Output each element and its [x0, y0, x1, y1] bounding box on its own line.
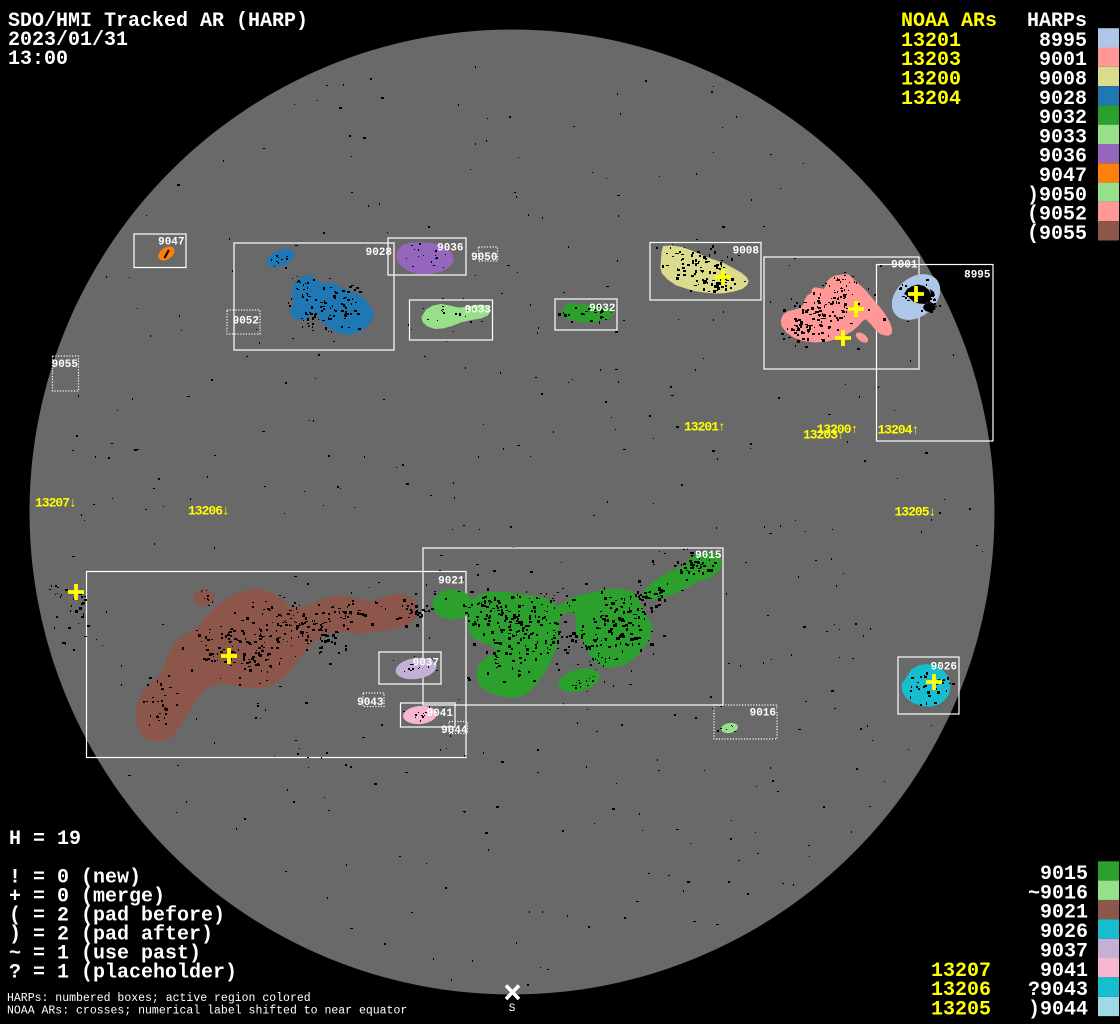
svg-text:13205↓: 13205↓ — [895, 505, 936, 520]
svg-text:9032: 9032 — [589, 303, 615, 315]
svg-text:9055: 9055 — [52, 359, 79, 371]
svg-text:8995: 8995 — [964, 270, 991, 282]
svg-text:9052: 9052 — [233, 316, 259, 328]
svg-text:9036: 9036 — [437, 243, 463, 255]
svg-text:9041: 9041 — [427, 708, 454, 720]
svg-text:13205: 13205 — [931, 999, 991, 1022]
svg-text:HARPs: numbered boxes; active: HARPs: numbered boxes; active region col… — [7, 992, 311, 1005]
svg-text:9047: 9047 — [158, 237, 184, 249]
svg-text:9016: 9016 — [750, 708, 776, 720]
svg-text:9008: 9008 — [733, 246, 760, 258]
svg-text:NOAA ARs: crosses; numerical l: NOAA ARs: crosses; numerical label shift… — [7, 1005, 407, 1018]
svg-text:9050: 9050 — [471, 252, 497, 264]
svg-text:9015: 9015 — [695, 550, 722, 562]
svg-text:9001: 9001 — [891, 260, 918, 272]
svg-text:H = 19: H = 19 — [9, 828, 81, 851]
svg-text:13200↑: 13200↑ — [817, 422, 858, 437]
svg-text:S: S — [509, 1003, 516, 1015]
svg-text:13207↓: 13207↓ — [35, 496, 76, 511]
svg-text:9026: 9026 — [931, 662, 957, 674]
svg-text:(9055: (9055 — [1027, 223, 1087, 246]
svg-text:9043: 9043 — [357, 697, 384, 709]
svg-text:? = 1 (placeholder): ? = 1 (placeholder) — [9, 962, 237, 985]
svg-text:9037: 9037 — [413, 658, 439, 670]
svg-text:9033: 9033 — [465, 305, 492, 317]
svg-text:9021: 9021 — [438, 576, 465, 588]
svg-text:13:00: 13:00 — [8, 48, 68, 71]
svg-text:)9044: )9044 — [1028, 999, 1088, 1022]
svg-text:13201↑: 13201↑ — [684, 420, 725, 435]
svg-text:13204↑: 13204↑ — [878, 423, 919, 438]
svg-text:9028: 9028 — [366, 247, 393, 259]
svg-text:13206↓: 13206↓ — [188, 504, 229, 519]
svg-text:9044: 9044 — [441, 725, 468, 737]
svg-text:13204: 13204 — [901, 88, 961, 111]
